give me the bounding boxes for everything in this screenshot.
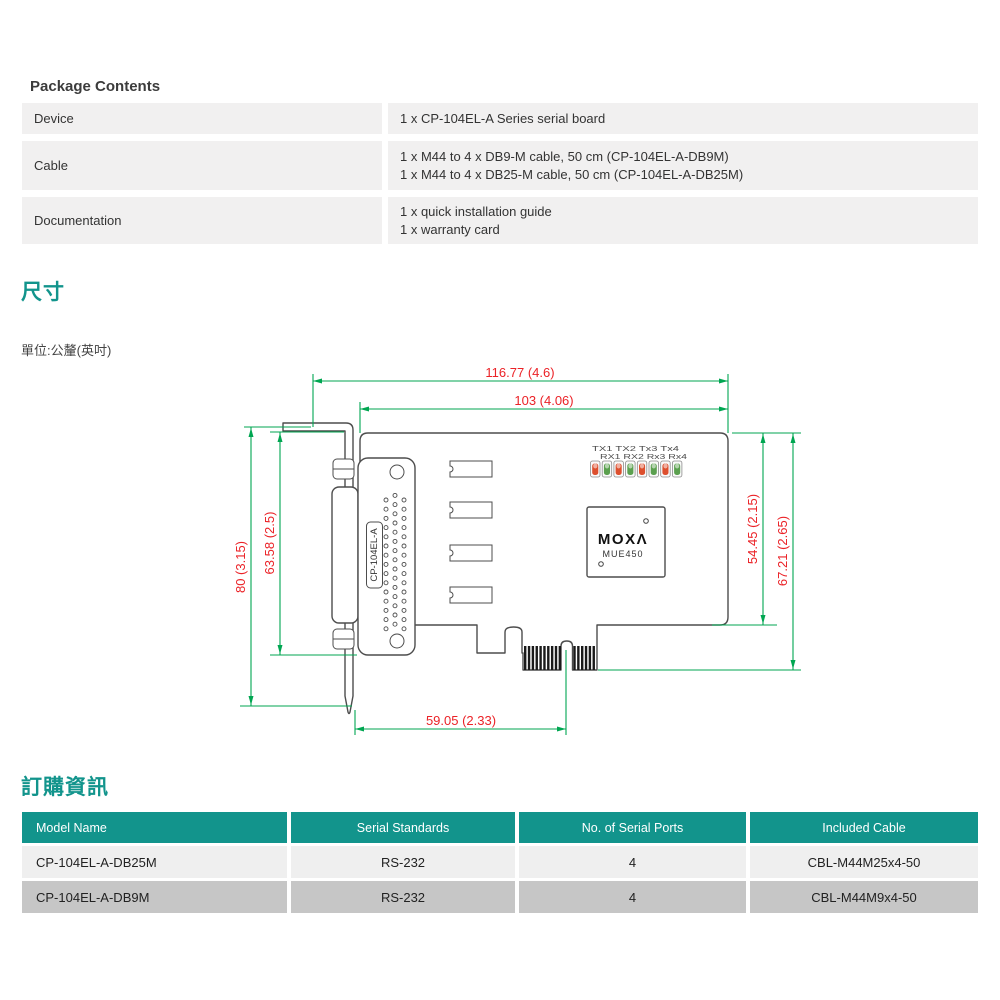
package-label-cable: Cable [34, 157, 382, 175]
ordering-cell-ports: 4 [519, 881, 746, 913]
package-row-value: 1 x CP-104EL-A Series serial board [388, 103, 978, 134]
dimensions-unit-note: 單位:公釐(英吋) [21, 340, 111, 359]
pin-header-slot-3 [450, 545, 492, 561]
ordering-cell-standard: RS-232 [291, 846, 515, 878]
dim-bottom-length-label: 59.05 (2.33) [426, 713, 496, 728]
package-label-device: Device [34, 110, 382, 128]
package-row-value: 1 x M44 to 4 x DB9-M cable, 50 cm (CP-10… [388, 141, 978, 190]
ordering-header-included-cable: Included Cable [750, 812, 978, 843]
package-value-cable-1: 1 x M44 to 4 x DB9-M cable, 50 cm (CP-10… [400, 148, 978, 166]
dim-total-height-label: 67.21 (2.65) [775, 516, 790, 586]
db-connector-shell [332, 487, 358, 623]
connector-label: CP-104EL-A [369, 528, 380, 582]
dim-board-height-label: 54.45 (2.15) [745, 494, 760, 564]
ordering-cell-cable: CBL-M44M9x4-50 [750, 881, 978, 913]
screw-socket-bottom [333, 629, 354, 649]
ordering-cell-ports: 4 [519, 846, 746, 878]
moxa-chip-model: MUE450 [602, 549, 643, 559]
package-row-label: Cable [22, 141, 382, 190]
ordering-table: Model Name Serial Standards No. of Seria… [22, 812, 978, 913]
dim-bracket-height-label: 80 (3.15) [233, 541, 248, 593]
ordering-header-model-name: Model Name [22, 812, 287, 843]
package-value-cable-2: 1 x M44 to 4 x DB25-M cable, 50 cm (CP-1… [400, 166, 978, 184]
dim-total-width-label: 116.77 (4.6) [485, 365, 554, 380]
dimensions-title: 尺寸 [21, 276, 65, 306]
dim-board-width: 103 (4.06) [360, 393, 728, 433]
pin-header-slot-4 [450, 587, 492, 603]
ordering-cell-model: CP-104EL-A-DB25M [22, 846, 287, 878]
package-contents-table: Device 1 x CP-104EL-A Series serial boar… [22, 103, 978, 244]
ordering-cell-standard: RS-232 [291, 881, 515, 913]
screw-hole-top [390, 465, 404, 479]
package-value-doc-2: 1 x warranty card [400, 221, 978, 239]
package-value-device: 1 x CP-104EL-A Series serial board [400, 110, 978, 128]
screw-hole-bottom [390, 634, 404, 648]
ordering-cell-model: CP-104EL-A-DB9M [22, 881, 287, 913]
moxa-chip-logo: MOXΛ [598, 531, 648, 548]
ordering-cell-cable: CBL-M44M25x4-50 [750, 846, 978, 878]
package-label-documentation: Documentation [34, 212, 382, 230]
ordering-header-serial-standards: Serial Standards [291, 812, 515, 843]
package-value-doc-1: 1 x quick installation guide [400, 203, 978, 221]
led-labels-row2: RX1 RX2 Rx3 Rx4 [600, 452, 687, 461]
package-row-value: 1 x quick installation guide 1 x warrant… [388, 197, 978, 244]
pin-header-slot-2 [450, 502, 492, 518]
dimension-diagram: CP-104EL-A TX1 TX2 Tx3 Tx4 RX1 RX2 Rx3 R… [0, 360, 1000, 750]
ordering-header-serial-ports: No. of Serial Ports [519, 812, 746, 843]
dim-connector-height-label: 63.58 (2.5) [262, 512, 277, 575]
ordering-title: 訂購資訊 [21, 771, 109, 801]
pin-header-slot-1 [450, 461, 492, 477]
dim-board-width-label: 103 (4.06) [514, 393, 573, 408]
package-contents-title: Package Contents [30, 78, 160, 95]
package-row-label: Documentation [22, 197, 382, 244]
package-row-label: Device [22, 103, 382, 134]
screw-socket-top [333, 459, 354, 479]
